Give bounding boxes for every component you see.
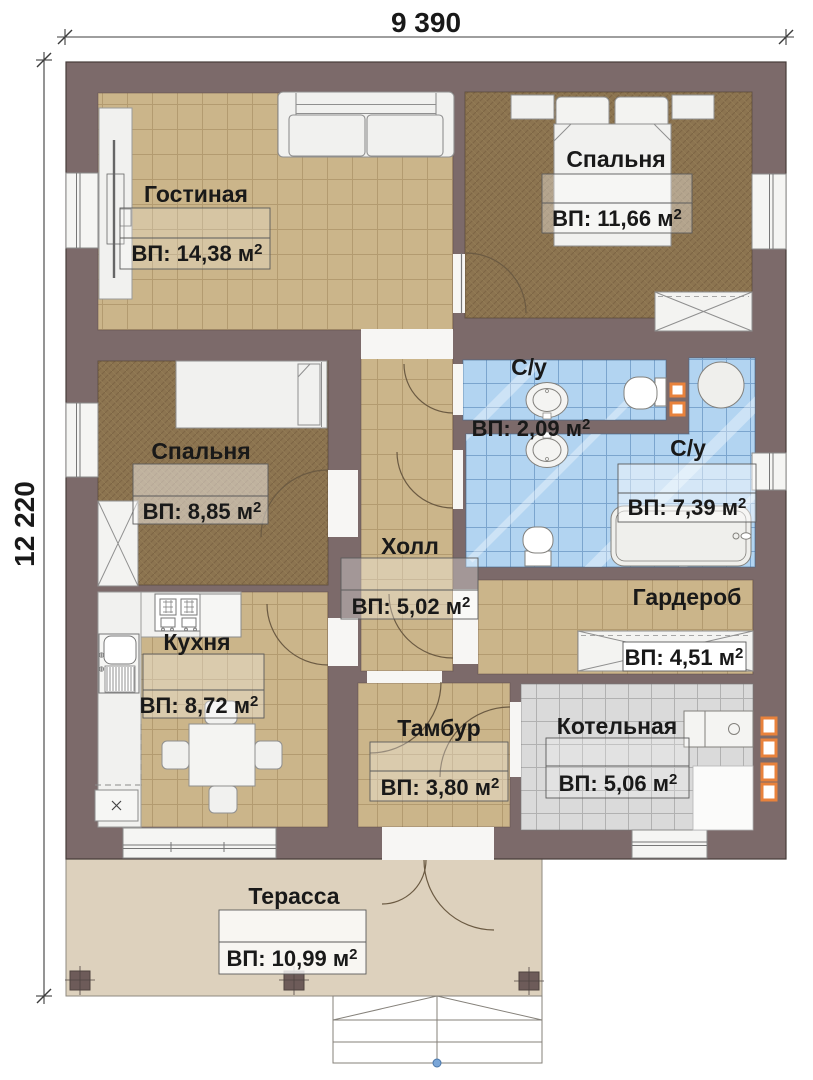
svg-text:Спальня: Спальня <box>151 438 250 464</box>
svg-text:ВП: 14,38 м2: ВП: 14,38 м2 <box>132 241 263 266</box>
svg-text:ВП: 5,02 м2: ВП: 5,02 м2 <box>352 594 471 619</box>
svg-text:Тамбур: Тамбур <box>397 715 480 741</box>
svg-text:ВП: 7,39 м2: ВП: 7,39 м2 <box>628 495 747 520</box>
svg-text:ВП: 10,99 м2: ВП: 10,99 м2 <box>227 946 358 971</box>
svg-text:Спальня: Спальня <box>566 146 665 172</box>
svg-text:С/у: С/у <box>670 435 706 461</box>
svg-text:ВП: 4,51 м2: ВП: 4,51 м2 <box>625 645 744 670</box>
svg-text:Терасса: Терасса <box>248 883 339 909</box>
svg-text:ВП: 8,72 м2: ВП: 8,72 м2 <box>140 693 259 718</box>
svg-text:Холл: Холл <box>381 533 439 559</box>
svg-text:Гостиная: Гостиная <box>144 181 248 207</box>
svg-text:ВП: 11,66 м2: ВП: 11,66 м2 <box>552 206 682 231</box>
svg-text:ВП: 3,80 м2: ВП: 3,80 м2 <box>381 775 500 800</box>
svg-text:12 220: 12 220 <box>9 481 40 567</box>
svg-text:С/у: С/у <box>511 354 547 380</box>
svg-text:Кухня: Кухня <box>163 629 230 655</box>
svg-text:9 390: 9 390 <box>391 7 461 38</box>
svg-text:ВП: 5,06 м2: ВП: 5,06 м2 <box>559 771 678 796</box>
svg-text:ВП: 8,85 м2: ВП: 8,85 м2 <box>143 499 262 524</box>
svg-text:Гардероб: Гардероб <box>633 584 742 610</box>
svg-text:ВП: 2,09 м2: ВП: 2,09 м2 <box>472 416 591 441</box>
svg-text:Котельная: Котельная <box>557 713 677 739</box>
